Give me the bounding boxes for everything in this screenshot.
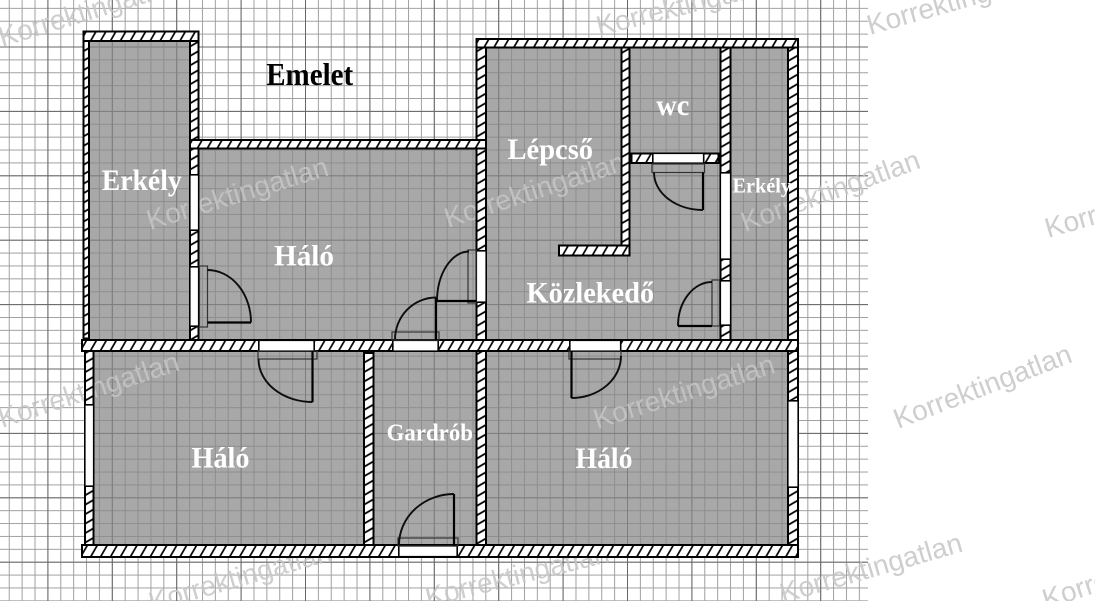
svg-text:Gardrób: Gardrób [387,421,473,447]
svg-text:Háló: Háló [576,442,633,475]
svg-text:Emelet: Emelet [266,56,353,92]
svg-text:Erkély: Erkély [733,173,792,197]
svg-text:Háló: Háló [192,442,250,475]
svg-text:Háló: Háló [274,239,334,272]
svg-text:Erkély: Erkély [102,164,182,197]
svg-text:Közlekedő: Közlekedő [527,277,655,310]
svg-text:wc: wc [656,89,689,122]
svg-text:Lépcső: Lépcső [508,133,594,166]
